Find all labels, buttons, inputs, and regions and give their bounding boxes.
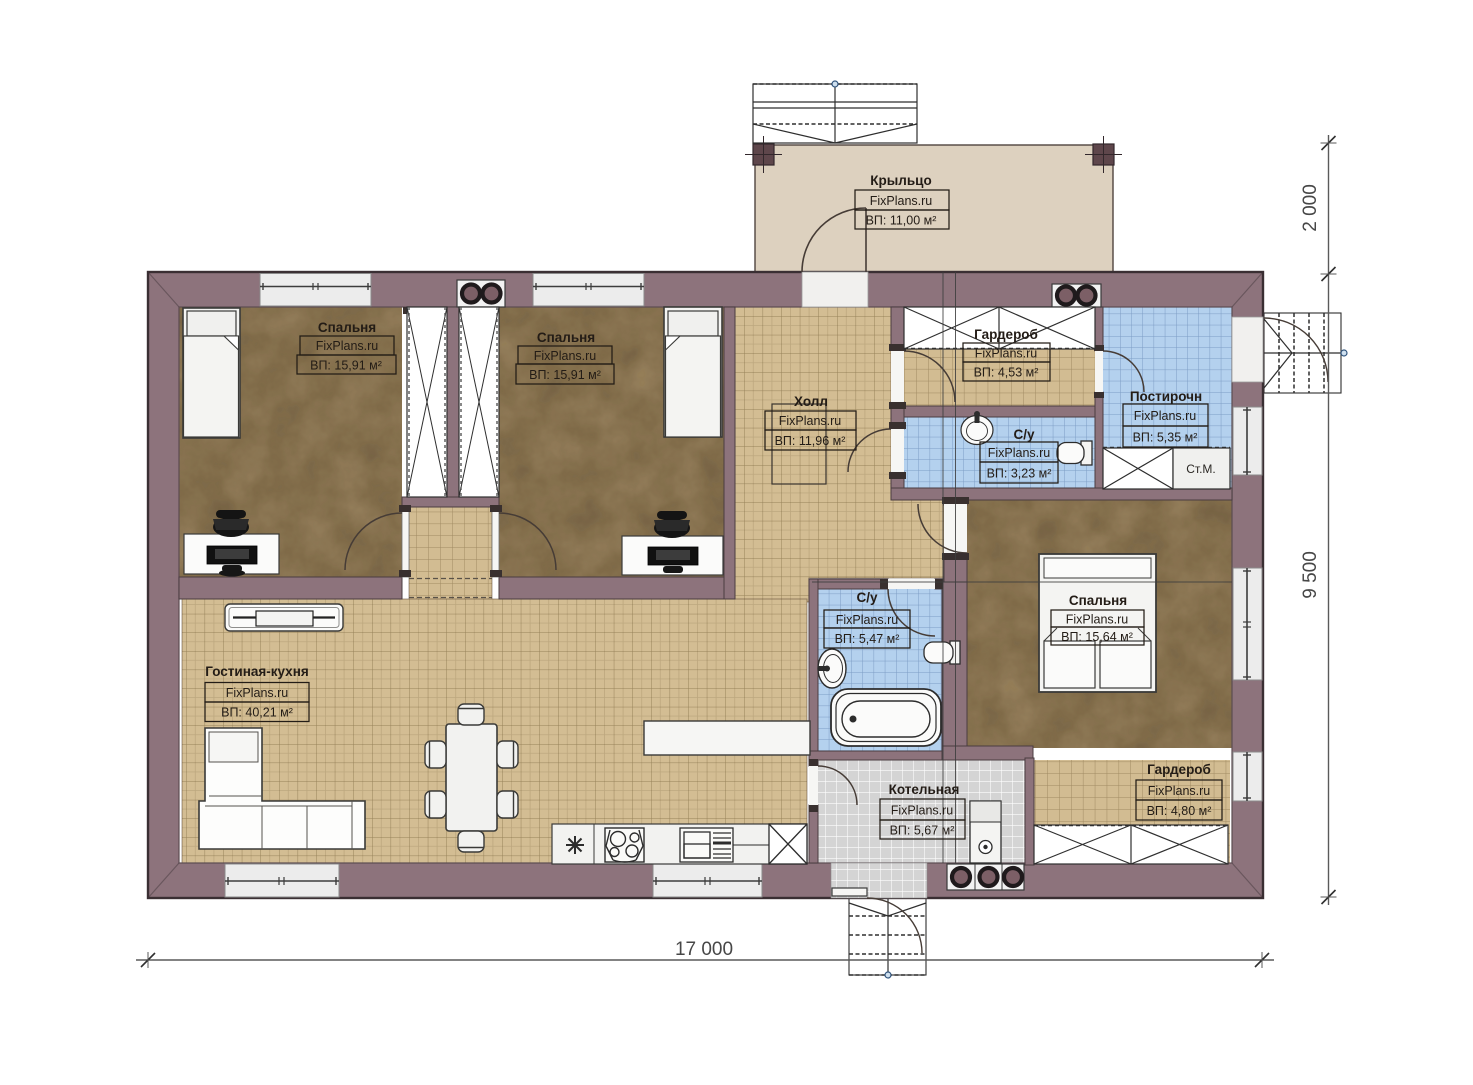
svg-text:Гостиная-кухня: Гостиная-кухня bbox=[205, 664, 308, 679]
svg-text:FixPlans.ru: FixPlans.ru bbox=[1148, 784, 1211, 798]
svg-text:FixPlans.ru: FixPlans.ru bbox=[836, 613, 899, 627]
svg-text:Спальня: Спальня bbox=[318, 320, 376, 335]
svg-text:Постирочн: Постирочн bbox=[1130, 389, 1202, 404]
svg-text:Спальня: Спальня bbox=[537, 330, 595, 345]
svg-text:ВП: 40,21 м²: ВП: 40,21 м² bbox=[221, 706, 293, 720]
svg-text:Ст.М.: Ст.М. bbox=[1186, 462, 1216, 476]
svg-text:С/у: С/у bbox=[1013, 427, 1035, 442]
svg-text:Спальня: Спальня bbox=[1069, 593, 1127, 608]
svg-text:FixPlans.ru: FixPlans.ru bbox=[1066, 613, 1129, 627]
svg-text:FixPlans.ru: FixPlans.ru bbox=[534, 349, 597, 363]
svg-text:ВП: 15,64 м²: ВП: 15,64 м² bbox=[1061, 630, 1133, 644]
svg-text:ВП: 11,00 м²: ВП: 11,00 м² bbox=[866, 214, 937, 228]
svg-text:ВП: 15,91 м²: ВП: 15,91 м² bbox=[310, 359, 382, 373]
svg-text:FixPlans.ru: FixPlans.ru bbox=[316, 339, 379, 353]
svg-text:Котельная: Котельная bbox=[889, 782, 960, 797]
svg-text:ВП: 5,67 м²: ВП: 5,67 м² bbox=[890, 824, 955, 838]
svg-text:Крыльцо: Крыльцо bbox=[870, 173, 931, 188]
svg-text:9 500: 9 500 bbox=[1300, 551, 1321, 599]
svg-text:2 000: 2 000 bbox=[1300, 184, 1321, 232]
svg-text:ВП: 5,35 м²: ВП: 5,35 м² bbox=[1133, 431, 1198, 445]
svg-text:ВП: 4,53 м²: ВП: 4,53 м² bbox=[974, 366, 1039, 380]
svg-text:ВП: 11,96 м²: ВП: 11,96 м² bbox=[775, 434, 846, 448]
svg-text:17 000: 17 000 bbox=[675, 939, 733, 960]
svg-text:FixPlans.ru: FixPlans.ru bbox=[779, 414, 842, 428]
svg-text:ВП: 4,80 м²: ВП: 4,80 м² bbox=[1147, 804, 1212, 818]
svg-text:ВП: 3,23 м²: ВП: 3,23 м² bbox=[987, 467, 1052, 481]
svg-text:FixPlans.ru: FixPlans.ru bbox=[975, 347, 1038, 361]
svg-text:FixPlans.ru: FixPlans.ru bbox=[1134, 409, 1197, 423]
svg-text:FixPlans.ru: FixPlans.ru bbox=[988, 446, 1051, 460]
svg-text:Гардероб: Гардероб bbox=[974, 327, 1038, 342]
svg-text:Холл: Холл bbox=[794, 394, 828, 409]
svg-text:ВП: 15,91 м²: ВП: 15,91 м² bbox=[529, 368, 601, 382]
svg-text:ВП: 5,47 м²: ВП: 5,47 м² bbox=[835, 632, 900, 646]
svg-text:FixPlans.ru: FixPlans.ru bbox=[226, 686, 289, 700]
svg-text:FixPlans.ru: FixPlans.ru bbox=[870, 194, 933, 208]
svg-text:FixPlans.ru: FixPlans.ru bbox=[891, 804, 954, 818]
svg-text:С/у: С/у bbox=[856, 590, 878, 605]
svg-text:Гардероб: Гардероб bbox=[1147, 762, 1211, 777]
